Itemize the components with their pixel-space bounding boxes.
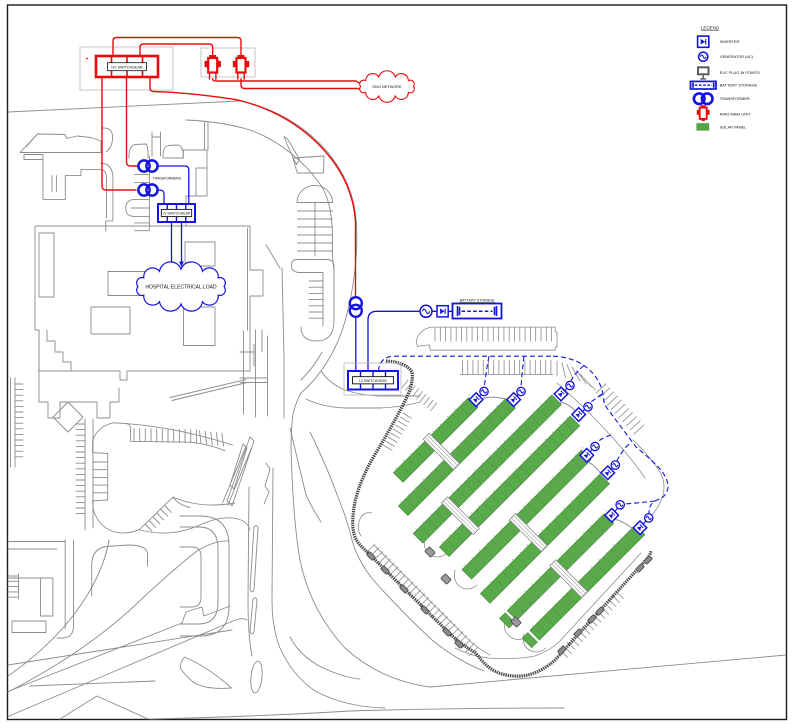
svg-text:SOLAR PANEL: SOLAR PANEL: [720, 125, 748, 130]
svg-text:EVC PLUG IN POINTS: EVC PLUG IN POINTS: [720, 70, 761, 75]
svg-text:DNO NETWORK: DNO NETWORK: [373, 85, 402, 89]
svg-text:GENERATOR (AC): GENERATOR (AC): [720, 54, 754, 59]
svg-text:BATTERY STORAGE: BATTERY STORAGE: [720, 83, 758, 88]
svg-text:TRANSFORMERS: TRANSFORMERS: [153, 177, 182, 181]
svg-text:HV SWITCHGEAR: HV SWITCHGEAR: [111, 65, 142, 69]
svg-text:TRANSFORMER: TRANSFORMER: [720, 96, 750, 101]
svg-text:LV SWITCHGEAR: LV SWITCHGEAR: [163, 212, 191, 216]
svg-text:LEGEND: LEGEND: [701, 26, 719, 31]
svg-text:BATTERY STORAGE: BATTERY STORAGE: [460, 299, 495, 303]
svg-text:INVERTER: INVERTER: [720, 39, 740, 44]
svg-text:L3 SWITCHGEAR: L3 SWITCHGEAR: [359, 379, 387, 383]
svg-text:RING MAIN UNIT: RING MAIN UNIT: [720, 111, 751, 116]
svg-text:HOSPITAL ELECTRICAL LOAD: HOSPITAL ELECTRICAL LOAD: [145, 285, 217, 291]
